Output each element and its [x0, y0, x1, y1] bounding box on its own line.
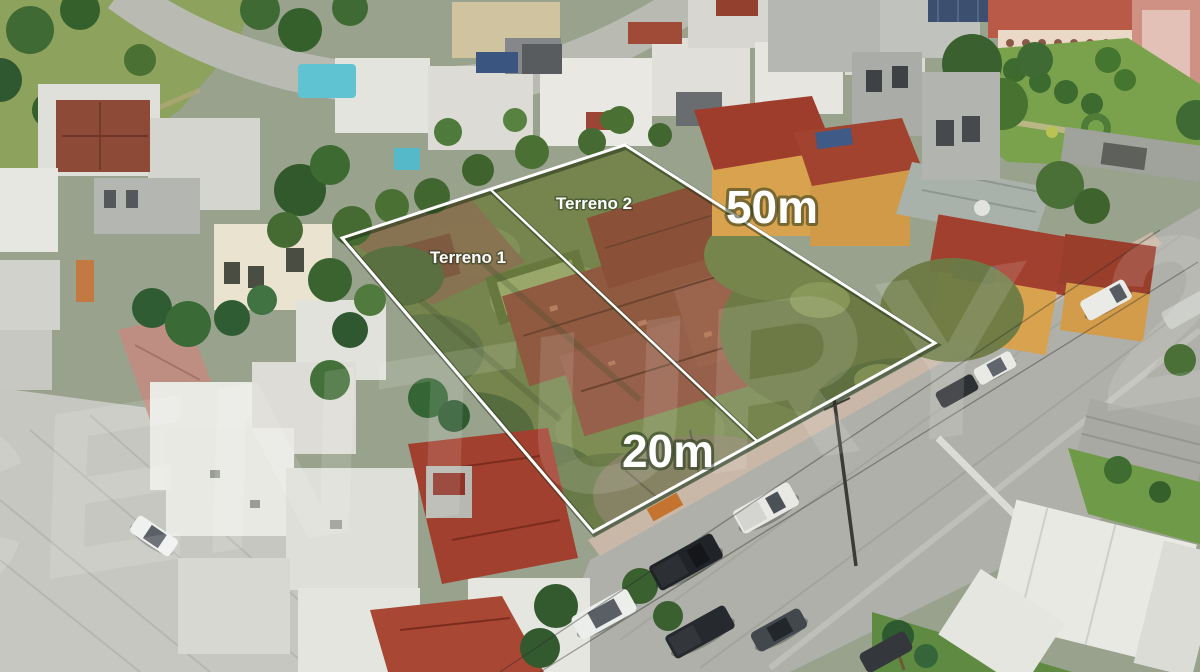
small-pool	[394, 148, 420, 170]
side-dimension-label: 50m	[726, 181, 818, 233]
front-dimension-label: 20m	[622, 425, 714, 477]
terreno-2-label: Terreno 2	[556, 194, 632, 213]
swimming-pool-blue	[298, 64, 356, 98]
solar-panels	[476, 52, 518, 73]
terreno-1-label: Terreno 1	[430, 248, 506, 267]
aerial-photo-canvas: CENTURY 21 Terreno 1 Terreno 2 50m 20m	[0, 0, 1200, 672]
aerial-photo: CENTURY 21 Terreno 1 Terreno 2 50m 20m	[0, 0, 1200, 672]
